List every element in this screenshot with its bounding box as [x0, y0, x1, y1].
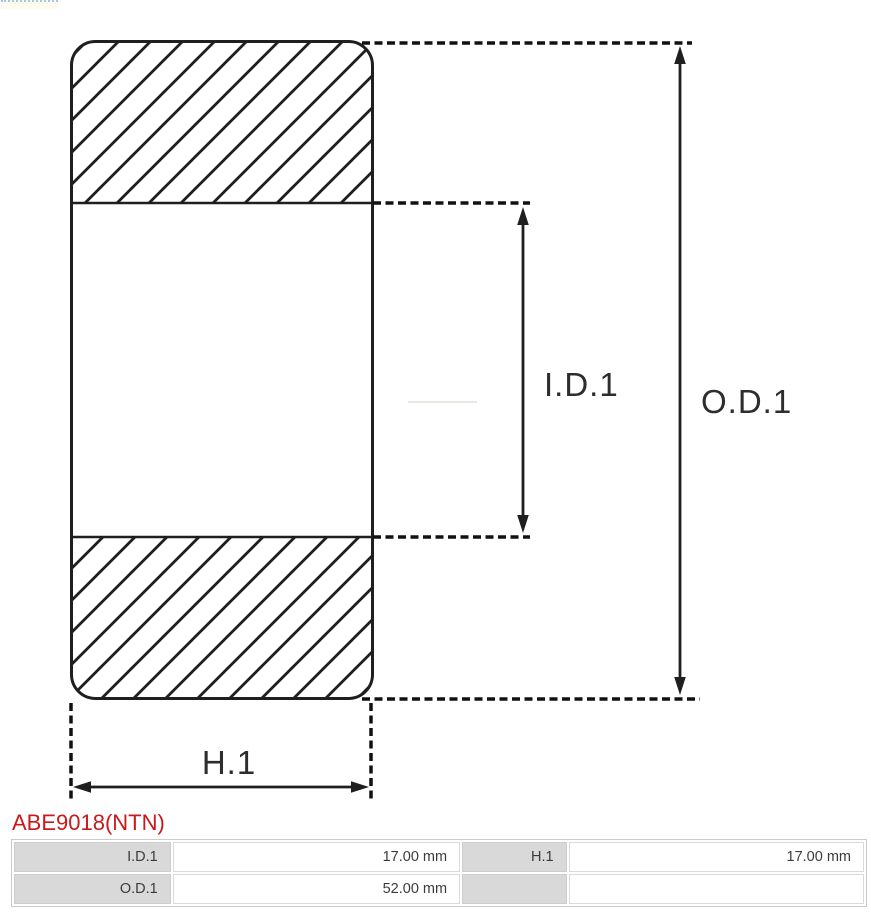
dimension-value-cell [569, 874, 864, 904]
dimension-value-cell: 52.00 mm [173, 874, 460, 904]
dimension-value-cell: 17.00 mm [569, 842, 864, 872]
part-number-link[interactable]: ABE9018(NTN) [12, 810, 852, 836]
inner-diameter-arrow [517, 207, 529, 533]
dimension-label-cell: O.D.1 [14, 874, 171, 904]
dimension-label-cell: H.1 [462, 842, 566, 872]
dimension-label-cell [462, 874, 566, 904]
dimension-value-cell: 17.00 mm [173, 842, 460, 872]
outer-diameter-arrow [674, 46, 686, 695]
bottom-hatched-band [72, 537, 373, 699]
top-hatched-band [72, 42, 373, 204]
height-arrow [73, 781, 369, 793]
height-label: H.1 [202, 744, 256, 781]
dimension-label-cell: I.D.1 [14, 842, 171, 872]
product-drawing-page: I.D.1 O.D.1 H.1 ABE9018(NTN) I.D.1 17.00… [0, 0, 871, 913]
table-row: O.D.1 52.00 mm [14, 874, 864, 904]
inner-diameter-label: I.D.1 [544, 366, 619, 403]
bearing-cross-section-diagram: I.D.1 O.D.1 H.1 [0, 0, 871, 806]
table-row: I.D.1 17.00 mm H.1 17.00 mm [14, 842, 864, 872]
outer-diameter-label: O.D.1 [701, 383, 792, 420]
dimensions-table: I.D.1 17.00 mm H.1 17.00 mm O.D.1 52.00 … [11, 839, 867, 907]
